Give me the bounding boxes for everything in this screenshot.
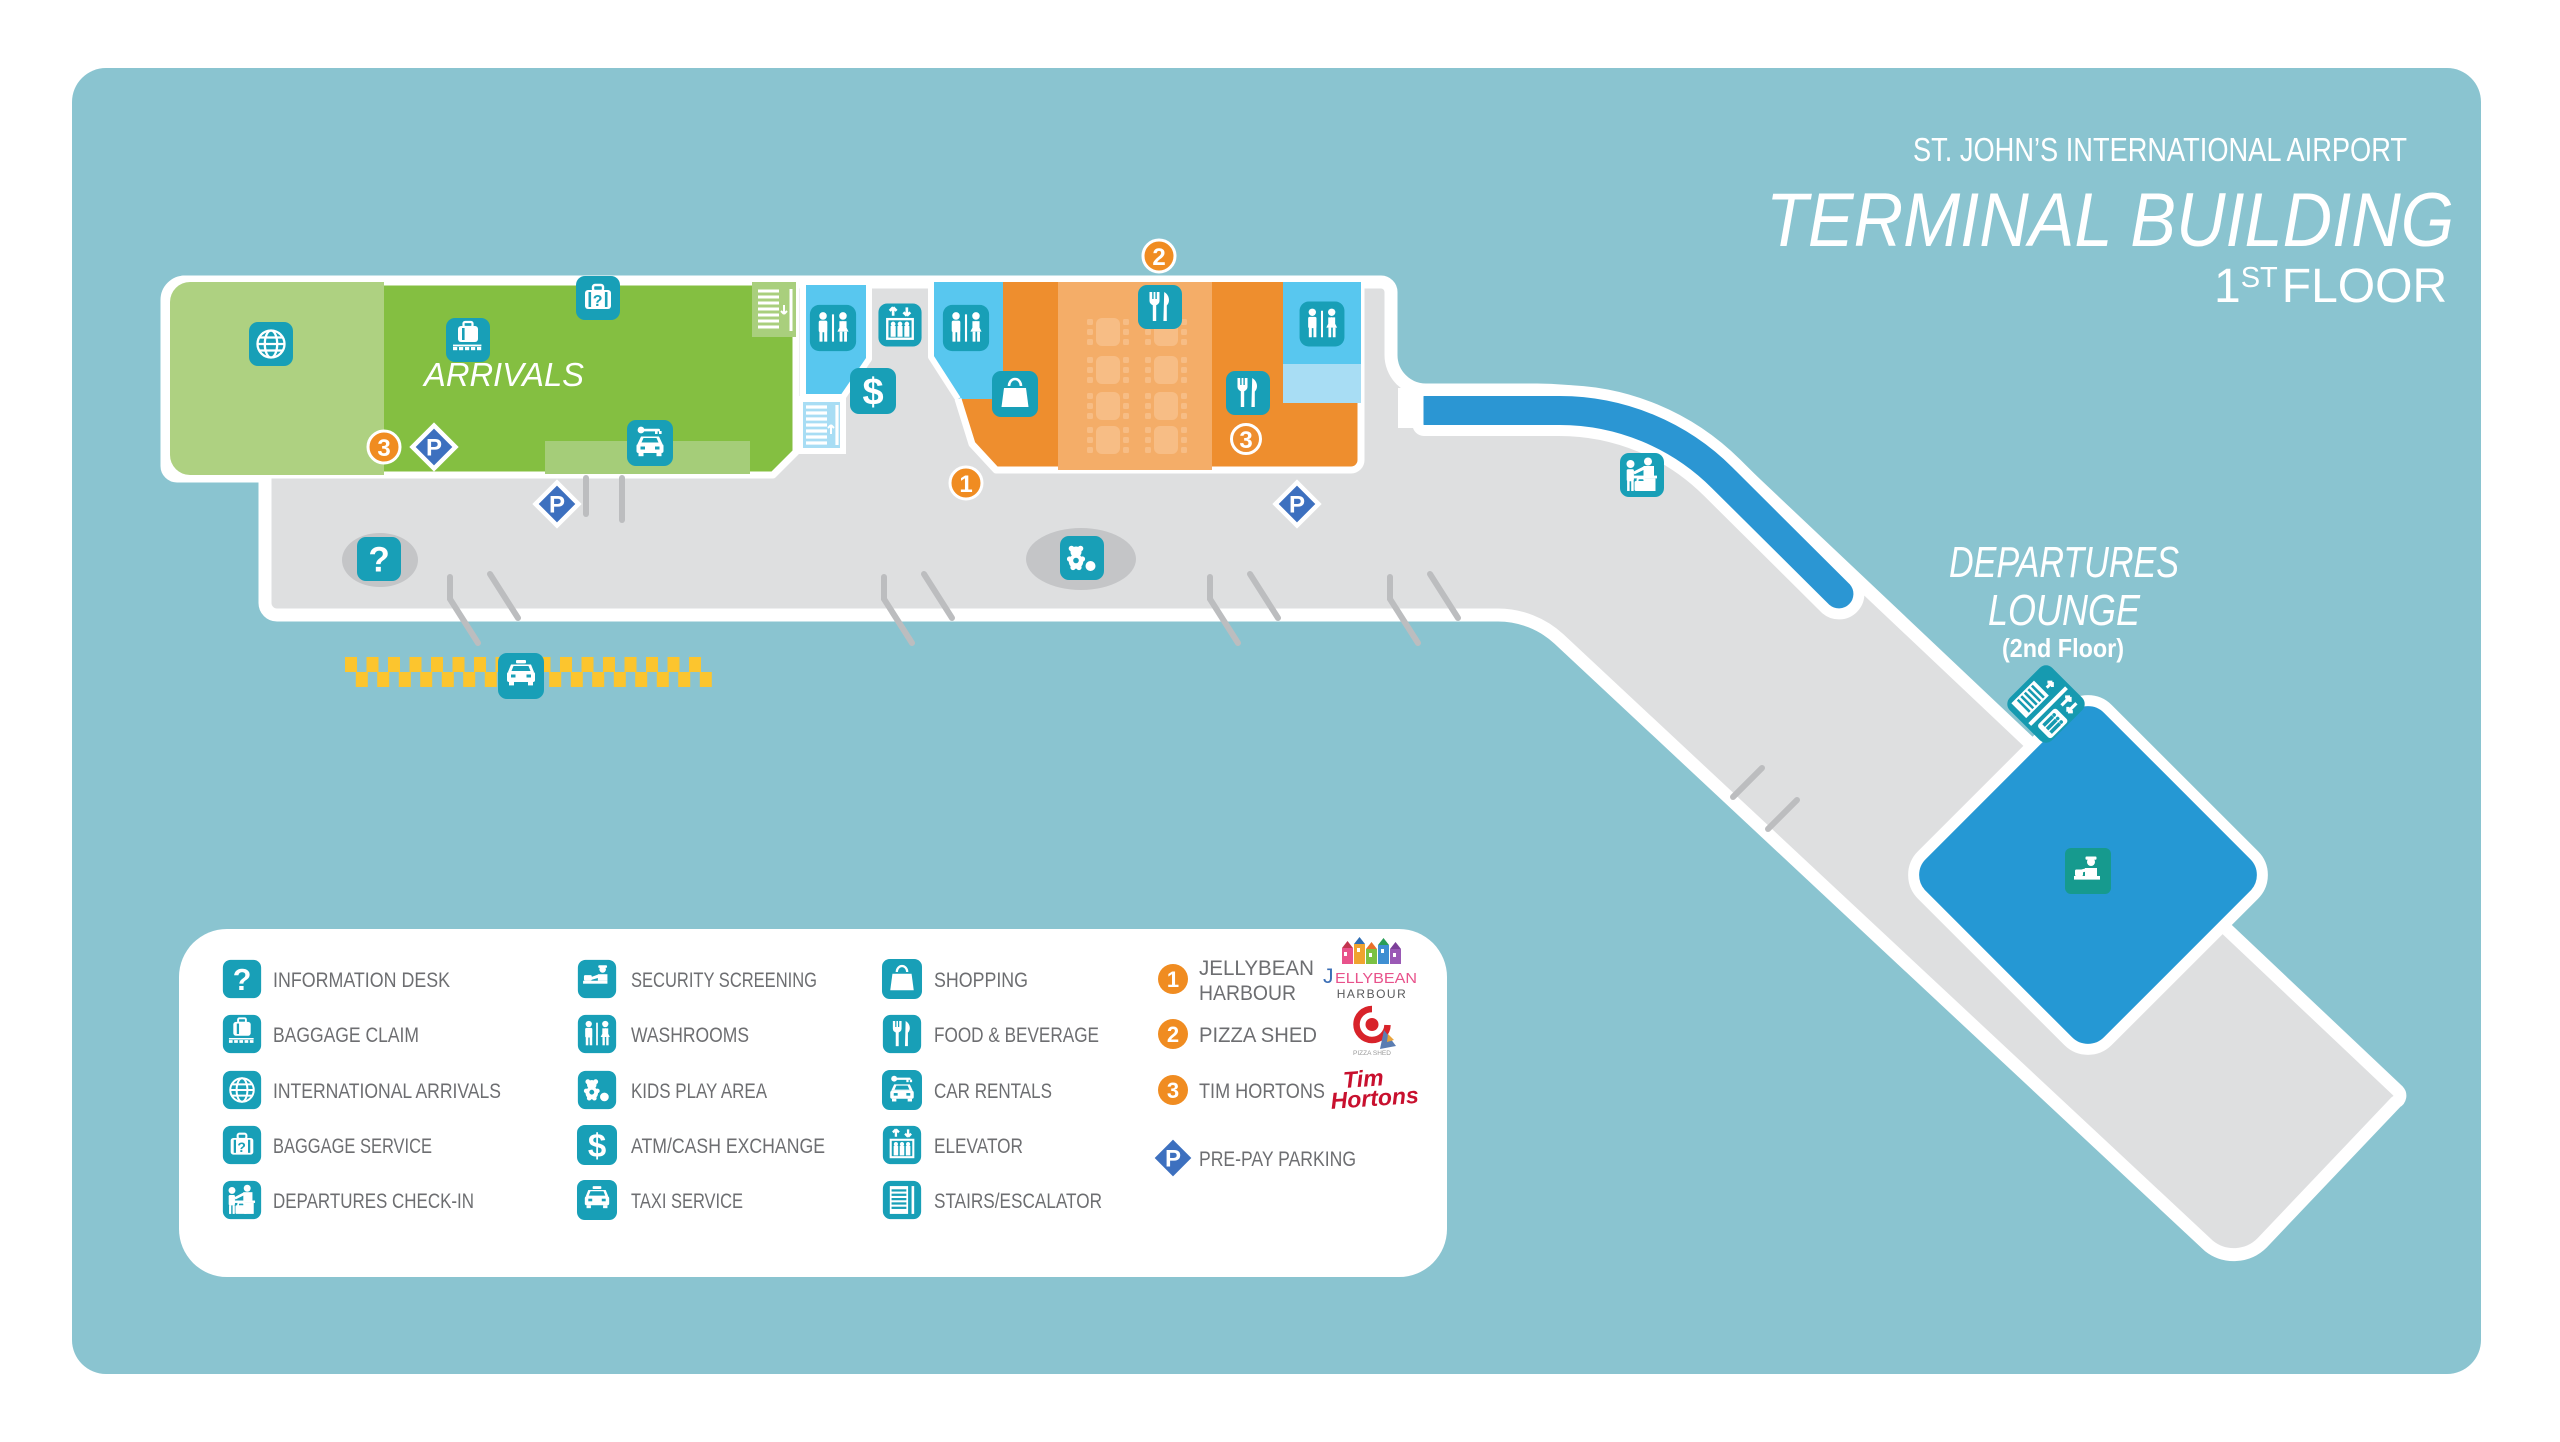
svg-text:PRE-PAY PARKING: PRE-PAY PARKING — [1199, 1147, 1356, 1171]
svg-text:2: 2 — [1167, 1022, 1179, 1047]
svg-text:1: 1 — [1167, 967, 1179, 992]
svg-text:STAIRS/ESCALATOR: STAIRS/ESCALATOR — [934, 1189, 1102, 1213]
svg-text:(2nd Floor): (2nd Floor) — [2002, 633, 2124, 663]
svg-text:INFORMATION DESK: INFORMATION DESK — [273, 968, 451, 992]
svg-text:ELEVATOR: ELEVATOR — [934, 1134, 1023, 1158]
svg-text:ST. JOHN’S INTERNATIONAL AIRPO: ST. JOHN’S INTERNATIONAL AIRPORT — [1913, 131, 2407, 168]
svg-text:TIM HORTONS: TIM HORTONS — [1199, 1079, 1325, 1103]
svg-text:SECURITY SCREENING: SECURITY SCREENING — [631, 968, 817, 992]
svg-text:J: J — [1323, 965, 1334, 988]
svg-text:KIDS PLAY AREA: KIDS PLAY AREA — [631, 1079, 768, 1103]
svg-text:PIZZA SHED: PIZZA SHED — [1199, 1023, 1317, 1047]
svg-text:ARRIVALS: ARRIVALS — [422, 356, 584, 393]
svg-text:HARBOUR: HARBOUR — [1199, 981, 1296, 1005]
svg-text:ATM/CASH EXCHANGE: ATM/CASH EXCHANGE — [631, 1134, 825, 1158]
svg-text:BAGGAGE CLAIM: BAGGAGE CLAIM — [273, 1023, 419, 1047]
svg-text:DEPARTURES CHECK-IN: DEPARTURES CHECK-IN — [273, 1189, 474, 1213]
svg-text:JELLYBEAN: JELLYBEAN — [1199, 956, 1314, 980]
svg-text:LOUNGE: LOUNGE — [1988, 586, 2141, 635]
svg-text:1: 1 — [959, 471, 972, 498]
svg-text:DEPARTURES: DEPARTURES — [1949, 538, 2179, 587]
svg-text:2: 2 — [1152, 244, 1165, 271]
svg-text:CAR RENTALS: CAR RENTALS — [934, 1079, 1052, 1103]
svg-text:HARBOUR: HARBOUR — [1337, 987, 1408, 1001]
svg-text:3: 3 — [1167, 1078, 1179, 1103]
svg-text:WASHROOMS: WASHROOMS — [631, 1023, 749, 1047]
svg-text:TERMINAL BUILDING: TERMINAL BUILDING — [1766, 178, 2454, 263]
svg-text:ELLYBEAN: ELLYBEAN — [1335, 970, 1417, 987]
svg-text:FOOD & BEVERAGE: FOOD & BEVERAGE — [934, 1023, 1099, 1047]
svg-text:PIZZA SHED: PIZZA SHED — [1353, 1050, 1391, 1057]
svg-text:3: 3 — [377, 435, 390, 462]
svg-text:INTERNATIONAL ARRIVALS: INTERNATIONAL ARRIVALS — [273, 1079, 501, 1103]
svg-text:3: 3 — [1239, 427, 1252, 454]
svg-text:BAGGAGE SERVICE: BAGGAGE SERVICE — [273, 1134, 432, 1158]
svg-text:TAXI SERVICE: TAXI SERVICE — [631, 1189, 743, 1213]
svg-text:SHOPPING: SHOPPING — [934, 968, 1028, 992]
